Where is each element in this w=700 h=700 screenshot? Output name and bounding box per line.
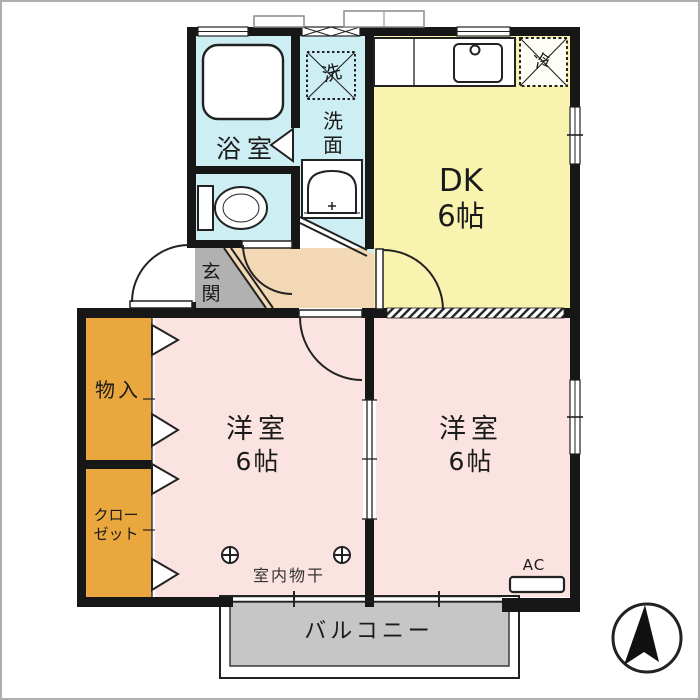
bedroom-right-size: 6帖 <box>439 446 503 478</box>
kitchen-counter-icon <box>374 38 515 86</box>
bedroom-side-window <box>567 380 583 454</box>
kitchen-window <box>457 27 510 36</box>
exterior-window-frames <box>254 11 424 27</box>
dk-side-window <box>567 107 583 164</box>
balcony-label: バルコニー <box>304 620 434 644</box>
compass-icon <box>613 604 681 672</box>
bedroom-partition-sliding-door <box>362 400 377 519</box>
bathroom-window <box>198 27 248 36</box>
indoor-laundry-label: 室内物干 <box>253 567 325 585</box>
dk-name: DK <box>437 164 484 199</box>
washroom-label: 洗 面 <box>323 109 343 157</box>
entrance-char-2: 関 <box>201 283 220 305</box>
closet-line-2: ゼット <box>93 525 138 544</box>
ac-label: AC <box>523 557 545 574</box>
washbasin-icon <box>302 160 362 218</box>
bedroom-right-label: 洋室 6帖 <box>439 414 503 478</box>
louver-window <box>302 27 360 36</box>
faucet-icon <box>471 46 480 55</box>
floorplan-drawing <box>2 2 700 700</box>
entrance-label: 玄 関 <box>201 261 220 305</box>
dk-size: 6帖 <box>437 199 484 234</box>
toilet-icon <box>198 186 267 230</box>
dk-label: DK 6帖 <box>437 164 484 234</box>
sliding-partition-hatch <box>387 308 564 318</box>
entrance-char-1: 玄 <box>201 261 220 283</box>
bedroom-left-size: 6帖 <box>226 446 290 478</box>
washroom-char-2: 面 <box>323 133 343 157</box>
laundry-pole-icon-2 <box>334 547 350 563</box>
bathtub-icon <box>203 45 283 119</box>
closet-label: クロー ゼット <box>93 506 138 544</box>
bathroom-label: 浴室 <box>216 135 278 163</box>
ac-unit-icon <box>510 577 564 592</box>
bedroom-left-name: 洋室 <box>226 414 290 446</box>
floorplan-image: 浴室 洗 洗 面 DK 6帖 冷 玄 関 物入 クロー ゼット 洋室 6帖 洋室… <box>0 0 700 700</box>
storage-label: 物入 <box>95 379 141 401</box>
laundry-pole-icon <box>222 547 238 563</box>
bedroom-right-name: 洋室 <box>439 414 503 446</box>
front-door <box>130 245 192 308</box>
bedroom-left-label: 洋室 6帖 <box>226 414 290 478</box>
closet-line-1: クロー <box>93 506 138 525</box>
refrigerator-label: 冷 <box>533 51 554 73</box>
washroom-char-1: 洗 <box>323 109 343 133</box>
